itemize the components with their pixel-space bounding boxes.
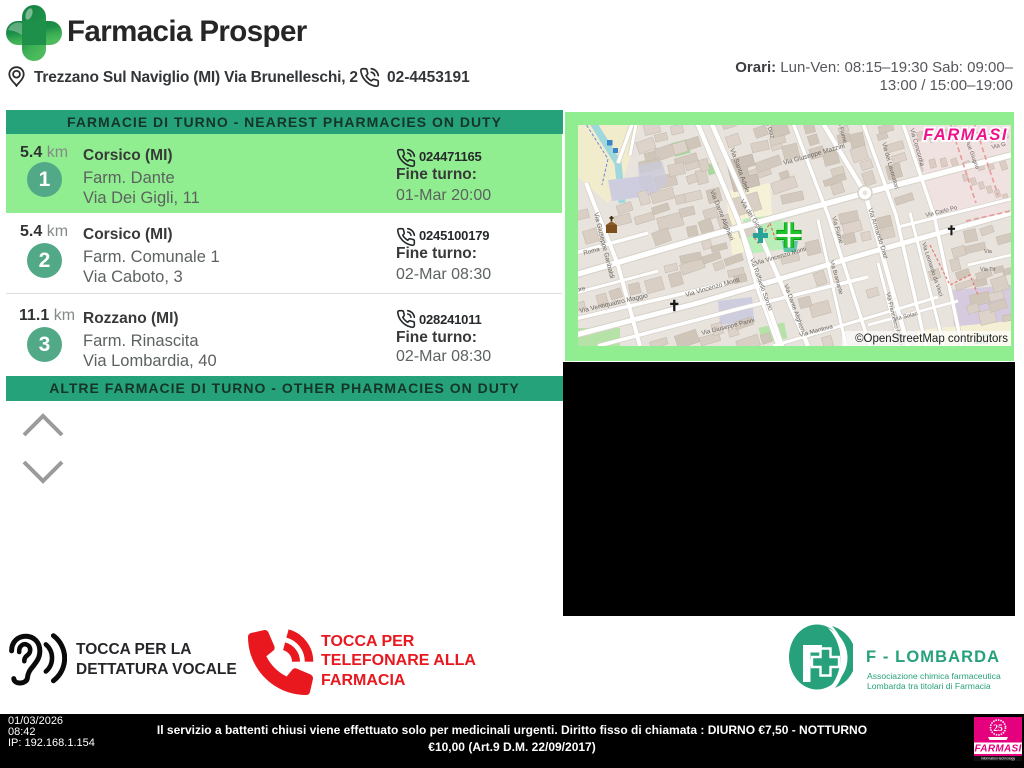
svg-text:✝: ✝ (946, 223, 957, 238)
svg-text:FARMASI: FARMASI (974, 744, 1021, 755)
svg-text:25: 25 (993, 724, 1003, 734)
svg-text:information technology: information technology (981, 757, 1015, 761)
svg-text:✝: ✝ (668, 299, 681, 315)
svg-text:©OpenStreetMap contributors: ©OpenStreetMap contributors (855, 333, 1008, 345)
svg-text:FARMASI: FARMASI (923, 126, 1008, 144)
svg-text:Via: Via (984, 249, 993, 255)
svg-text:Via Tir: Via Tir (980, 267, 996, 273)
